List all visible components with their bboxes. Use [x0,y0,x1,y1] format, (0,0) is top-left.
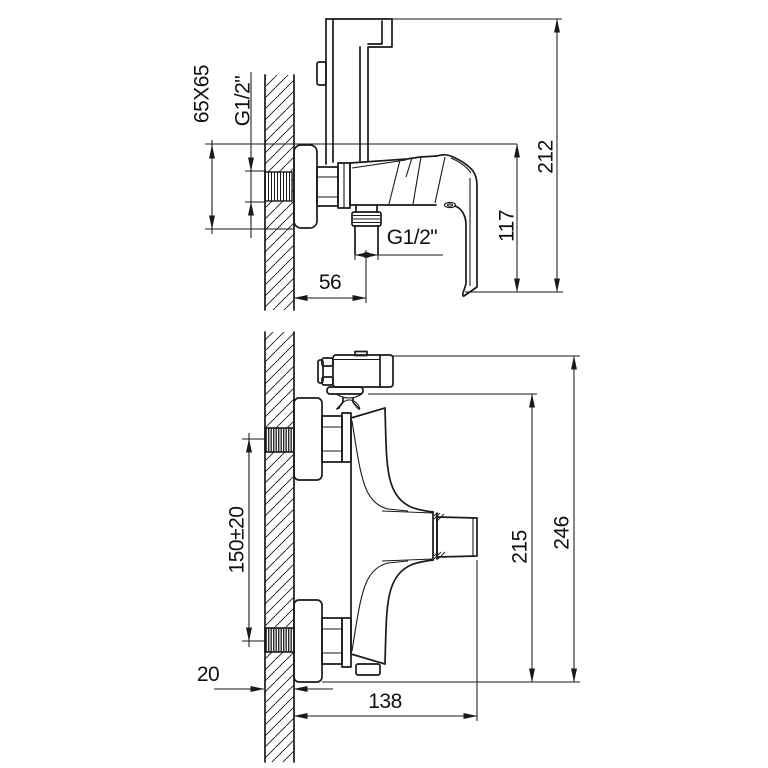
dim-215: 215 [368,394,537,682]
dim-label-65x65: 65X65 [190,65,213,123]
wall-pipe-thread-hot [265,428,294,452]
top-view: 65X65 G1/2" 212 117 G [190,19,563,310]
shower-holder-bracket-side [318,352,393,410]
wall-flange [294,145,317,228]
connection-nut-cold [322,618,351,667]
connection-nut-hot [322,413,351,462]
dim-wall-thread: G1/2" [231,72,266,238]
dim-label-150-20: 150±20 [225,507,248,574]
dim-150-20: 150±20 [225,433,266,647]
dim-label-outlet-thread: G1/2" [387,226,438,249]
mixer-body-side [351,408,433,675]
mixer-dimension-drawing: 65X65 G1/2" 212 117 G [0,0,768,768]
dim-label-215: 215 [508,530,531,564]
dim-label-20: 20 [197,663,219,686]
wall-pipe-thread [265,172,292,201]
lever-handle-top [437,155,477,296]
connection-nut-top [317,163,350,208]
dim-label-138: 138 [368,690,402,713]
outlet-thread [352,205,381,254]
dim-outlet-thread: G1/2" [355,226,443,260]
dim-label-246: 246 [550,516,573,550]
wall-pipe-thread-cold [265,628,294,652]
technical-drawing-page: 65X65 G1/2" 212 117 G [0,0,768,768]
dim-label-212: 212 [534,140,557,174]
bottom-view: 150±20 215 246 20 138 [197,332,580,762]
wall-section-bottom-view [265,332,294,762]
dim-246: 246 [322,356,580,682]
wall-plate-bottom [294,600,322,682]
wall-plate-top [294,398,322,480]
dim-label-117: 117 [495,210,518,242]
lever-handle-side [433,512,477,560]
dim-label-wall-thread: G1/2" [231,76,254,127]
dim-117: 117 [495,144,518,292]
dim-label-56: 56 [319,271,341,294]
shower-holder-bracket-top [317,19,392,164]
mixer-body-top [350,156,445,205]
